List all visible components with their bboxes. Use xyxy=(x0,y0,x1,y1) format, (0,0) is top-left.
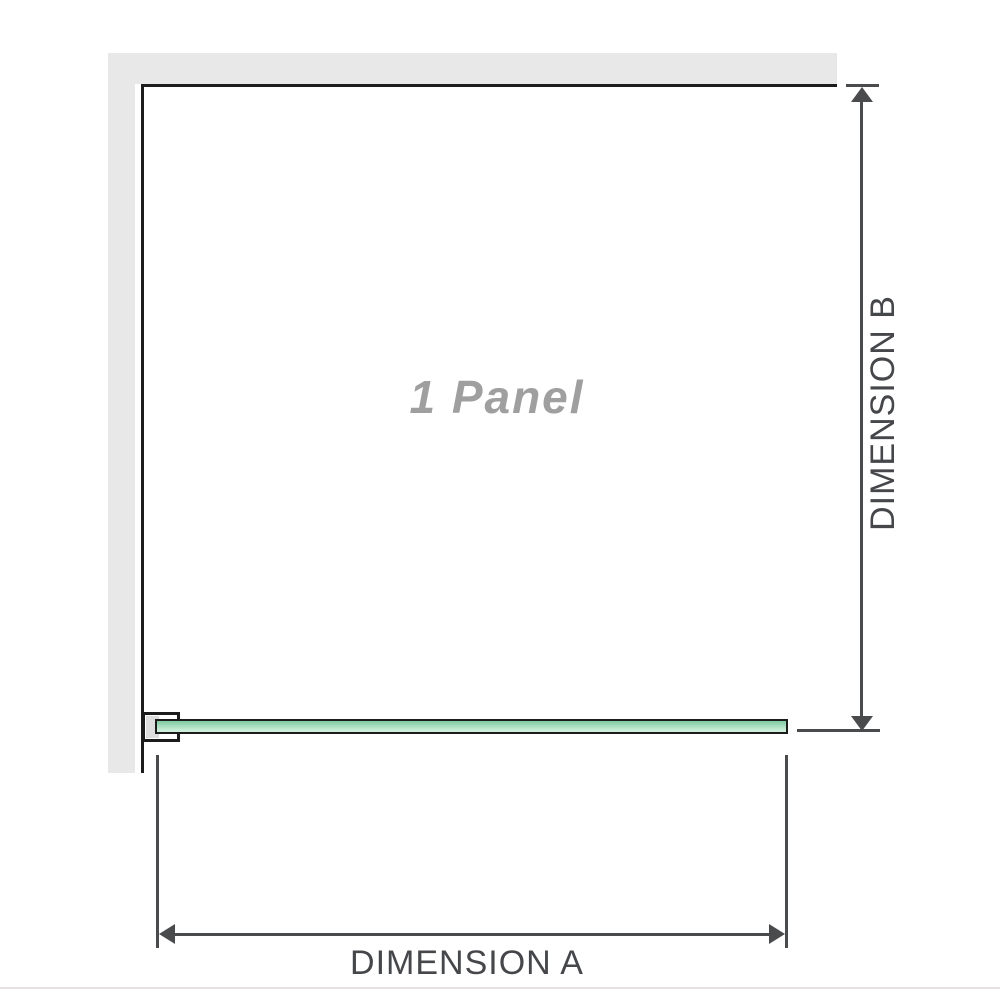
panel-top-edge-line xyxy=(141,84,837,87)
dimension-a-left-extension-line xyxy=(156,755,159,948)
panel-count-label: 1 Panel xyxy=(297,370,697,424)
glass-panel-plan-view xyxy=(155,719,788,734)
page-baseline xyxy=(0,987,1000,989)
dimension-a-right-extension-line xyxy=(785,755,788,948)
arrow-up-icon xyxy=(851,87,873,102)
dimension-b-line xyxy=(860,98,863,720)
dimension-b-label: DIMENSION B xyxy=(864,213,904,613)
arrow-left-icon xyxy=(159,924,175,944)
panel-left-edge-line xyxy=(141,84,144,773)
arrow-right-icon xyxy=(769,924,785,944)
arrow-down-icon xyxy=(851,716,873,731)
dimension-a-label: DIMENSION A xyxy=(267,944,667,983)
wall-top-bar xyxy=(108,53,837,84)
wall-left-bar xyxy=(108,53,135,773)
dimension-a-line xyxy=(168,933,776,936)
shower-panel-diagram: 1 Panel DIMENSION B DIMENSION A xyxy=(0,0,1000,1000)
